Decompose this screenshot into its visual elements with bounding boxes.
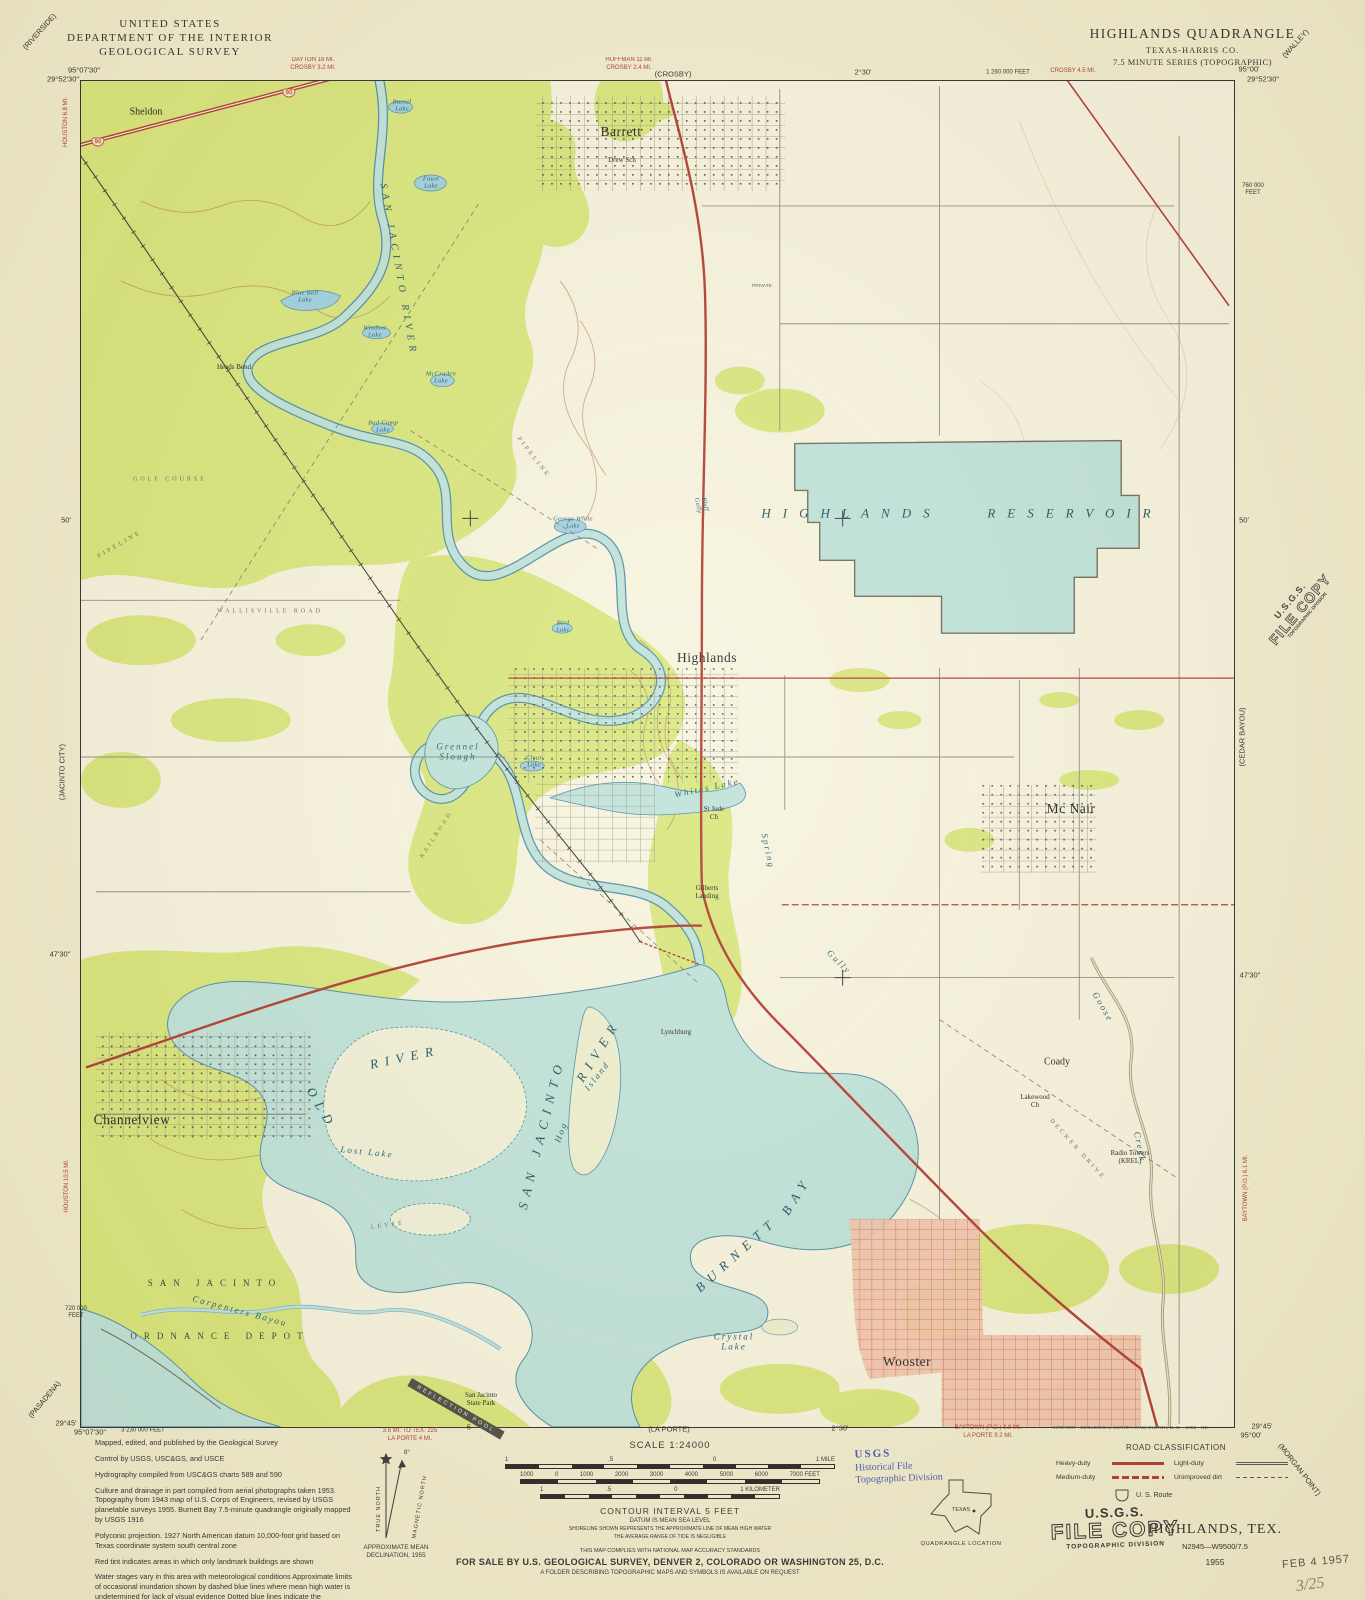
scale-tick-label: 1 KILOMETER — [740, 1487, 780, 1493]
scale-tick-label: 6000 — [755, 1472, 768, 1478]
declination-caption: APPROXIMATE MEAN DECLINATION, 1955 — [346, 1544, 446, 1560]
quadrangle-location: TEXAS QUADRANGLE LOCATION — [905, 1478, 1017, 1547]
quad-location-caption: QUADRANGLE LOCATION — [905, 1541, 1017, 1547]
agency-line: DEPARTMENT OF THE INTERIOR — [55, 32, 285, 46]
map-label: 760 000 FEET — [1242, 183, 1264, 197]
declination-arrows — [346, 1448, 446, 1544]
map-label: 47'30" — [50, 951, 71, 960]
folder-note: A FOLDER DESCRIBING TOPOGRAPHIC MAPS AND… — [420, 1570, 920, 1576]
agency-line: GEOLOGICAL SURVEY — [55, 46, 285, 60]
map-label: HUFFMAN 11 MI. CROSBY 2.4 MI. — [605, 57, 652, 73]
true-north-label: TRUE NORTH — [376, 1486, 382, 1532]
scale-tick-label: 0 — [555, 1472, 558, 1478]
scale-tick-label: 0 — [713, 1457, 716, 1463]
map-label: 95°07'30" — [68, 67, 100, 76]
map-label: 29°45' — [1251, 1423, 1272, 1432]
map-label: (RIVERSIDE) — [22, 12, 59, 52]
scale-tick-label: 1 — [540, 1487, 543, 1493]
map-label: HOUSTON 10.5 MI. — [64, 1159, 72, 1212]
light-duty-line-sample — [1236, 1462, 1288, 1465]
scale-tick-label: 1000 — [520, 1472, 533, 1478]
received-date-stamp: FEB 4 1957 — [1282, 1553, 1351, 1571]
shoreline-note: SHORELINE SHOWN REPRESENTS THE APPROXIMA… — [470, 1526, 870, 1532]
agency-line: UNITED STATES — [55, 18, 285, 32]
map-label: 95°07'30" — [74, 1429, 106, 1438]
map-label: 29°52'30" — [47, 76, 79, 85]
map-id-name: HIGHLANDS, TEX. — [1140, 1522, 1290, 1538]
road-classification-title: ROAD CLASSIFICATION — [1056, 1443, 1296, 1452]
credit-line: Water stages vary in this area with mete… — [95, 1572, 357, 1600]
scale-tick-label: 0 — [674, 1487, 677, 1493]
map-label: 50' — [1239, 517, 1249, 526]
sale-block: THIS MAP COMPLIES WITH NATIONAL MAP ACCU… — [420, 1548, 920, 1576]
map-label: CROSBY 4.5 MI. — [1050, 68, 1095, 76]
agency-block: UNITED STATES DEPARTMENT OF THE INTERIOR… — [55, 18, 285, 59]
quad-title: HIGHLANDS QUADRANGLE — [1075, 26, 1310, 42]
scale-tick-label: 1000 — [580, 1472, 593, 1478]
credit-line: Culture and drainage in part compiled fr… — [95, 1486, 357, 1525]
scale-tick-label: .5 — [606, 1487, 611, 1493]
scale-bar-feet — [520, 1479, 820, 1484]
scale-tick-label: 2000 — [615, 1472, 628, 1478]
map-label: 1 260 000 FEET — [986, 70, 1030, 77]
historical-file-stamp: USGS Historical File Topographic Divisio… — [854, 1443, 1005, 1487]
quad-title-block: HIGHLANDS QUADRANGLE TEXAS-HARRIS CO. 7.… — [1075, 26, 1310, 67]
usgs-topo-map-sheet: UNITED STATES DEPARTMENT OF THE INTERIOR… — [0, 0, 1365, 1600]
scale-tick-label: 1 — [505, 1457, 508, 1463]
map-label: 47'30" — [1240, 972, 1261, 981]
tide-note: THE AVERAGE RANGE OF TIDE IS NEGLIGIBLE — [470, 1534, 870, 1540]
map-label: DAYTON 18 MI. CROSBY 3.2 MI. — [290, 57, 335, 73]
scale-bar-km — [540, 1494, 780, 1499]
datum-note: DATUM IS MEAN SEA LEVEL — [470, 1518, 870, 1524]
scale-tick-label: 7000 FEET — [790, 1472, 820, 1478]
map-label: (CROSBY) — [655, 71, 692, 80]
map-label: HOUSTON 6.8 MI. — [63, 97, 71, 147]
us-route-shield-icon — [1114, 1488, 1130, 1502]
credit-line: Polyconic projection. 1927 North America… — [95, 1531, 357, 1551]
stamp-line: FILE COPY — [1255, 558, 1344, 660]
map-label: 29°45' — [55, 1420, 76, 1429]
contour-interval-note: CONTOUR INTERVAL 5 FEET — [470, 1506, 870, 1516]
map-label: (CEDAR BAYOU) — [1239, 707, 1248, 766]
map-label: 2°30' — [855, 69, 872, 78]
map-label: 50' — [61, 517, 71, 526]
medium-duty-line-sample — [1112, 1476, 1164, 1480]
texas-label: TEXAS — [905, 1507, 1017, 1513]
heavy-duty-line-sample — [1112, 1462, 1164, 1466]
map-label: (JACINTO CITY) — [59, 744, 68, 800]
map-id-year: 1955 — [1140, 1557, 1290, 1567]
legend-medium-duty-label: Medium-duty — [1056, 1474, 1112, 1481]
scale-mile-labels: 1.501 MILE — [505, 1457, 835, 1463]
map-id-code: N2945—W9500/7.5 — [1140, 1542, 1290, 1551]
scale-tick-label: 1 MILE — [816, 1457, 835, 1463]
sale-note: FOR SALE BY U.S. GEOLOGICAL SURVEY, DENV… — [420, 1557, 920, 1567]
map-area — [80, 80, 1235, 1428]
quad-series: 7.5 MINUTE SERIES (TOPOGRAPHIC) — [1075, 57, 1310, 67]
map-label: BAYTOWN (P.O.) 6.1 MI. — [1243, 1155, 1251, 1222]
scale-km-labels: 1.501 KILOMETER — [540, 1487, 780, 1493]
map-id-block: HIGHLANDS, TEX. N2945—W9500/7.5 1955 — [1140, 1522, 1290, 1567]
road-classification-legend: ROAD CLASSIFICATION Heavy-duty Light-dut… — [1056, 1443, 1296, 1502]
legend-heavy-duty-label: Heavy-duty — [1056, 1460, 1112, 1467]
map-label: 29°52'30" — [1247, 76, 1279, 85]
credits-block: Mapped, edited, and published by the Geo… — [95, 1438, 357, 1600]
scale-tick-label: 5000 — [720, 1472, 733, 1478]
map-label: (PASADENA) — [27, 1380, 63, 1420]
us-route-label: U. S. Route — [1136, 1492, 1172, 1499]
legend-light-duty-label: Light-duty — [1174, 1460, 1236, 1467]
compliance-note: THIS MAP COMPLIES WITH NATIONAL MAP ACCU… — [420, 1548, 920, 1554]
scale-feet-labels: 100001000200030004000500060007000 FEET — [520, 1472, 820, 1478]
unimproved-line-sample — [1236, 1476, 1288, 1480]
declination-angle: 8° — [404, 1450, 410, 1456]
scale-tick-label: .5 — [608, 1457, 613, 1463]
credit-line: Control by USGS, USC&GS, and USCE — [95, 1454, 357, 1464]
legend-unimproved-label: Unimproved dirt — [1174, 1474, 1236, 1481]
file-copy-side-stamp: U.S.G.S. FILE COPY TOPOGRAPHIC DIVISION — [1248, 552, 1349, 664]
quad-state: TEXAS-HARRIS CO. — [1075, 45, 1310, 55]
map-graphic — [81, 81, 1234, 1427]
credit-line: Mapped, edited, and published by the Geo… — [95, 1438, 357, 1448]
map-label: 3 230 000 FEET — [121, 1428, 165, 1435]
credit-line: Hydrography compiled from USC&GS charts … — [95, 1470, 357, 1480]
scale-tick-label: 4000 — [685, 1472, 698, 1478]
map-label: 95°00' — [1240, 1432, 1261, 1441]
scale-label: SCALE 1:24000 — [470, 1440, 870, 1451]
scale-bar-miles — [505, 1464, 835, 1469]
scale-tick-label: 3000 — [650, 1472, 663, 1478]
map-label: 3.6 MI. TO TEX. 225 LA PORTE 4 MI. — [383, 1428, 438, 1444]
pencil-annotation: 3/25 — [1295, 1574, 1326, 1596]
credit-line: Red tint indicates areas in which only l… — [95, 1557, 357, 1567]
scale-block: SCALE 1:24000 1.501 MILE 100001000200030… — [470, 1440, 870, 1540]
declination-diagram: TRUE NORTH MAGNETIC NORTH 8° APPROXIMATE… — [346, 1448, 446, 1566]
